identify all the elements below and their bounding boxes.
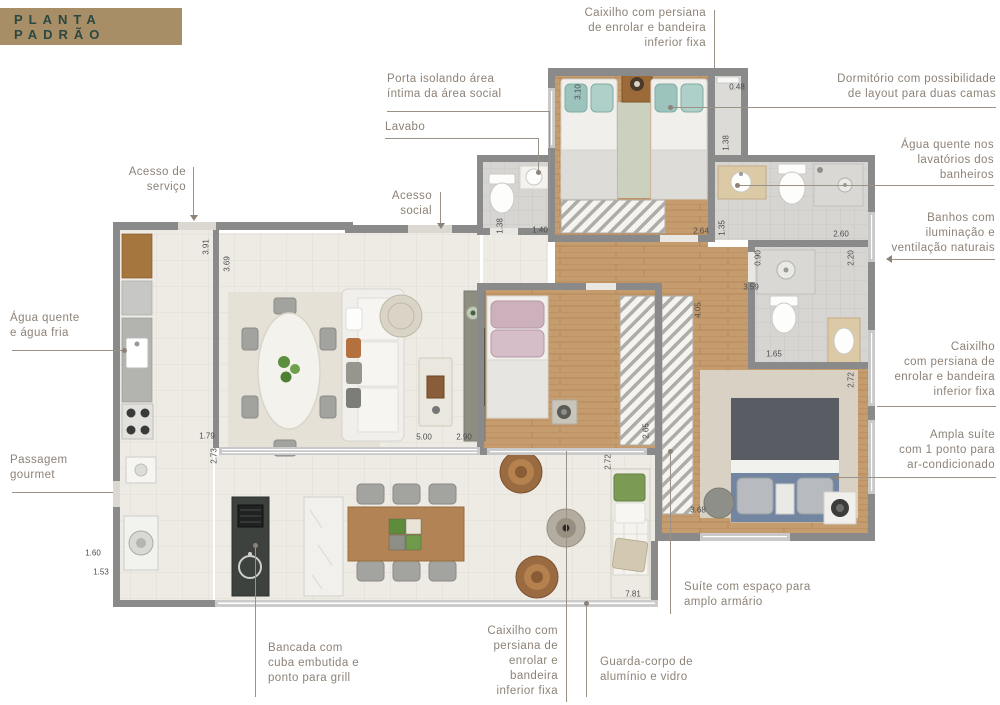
leader-arrow-acesso-social — [437, 223, 445, 229]
leader-suite-armario — [670, 452, 671, 614]
callout-passagem-gourmet: Passagem gourmet — [10, 453, 68, 483]
callout-bancada: Bancada com cuba embutida e ponto para g… — [268, 641, 359, 686]
callout-banhos: Banhos com iluminação e ventilação natur… — [892, 211, 996, 256]
leader-caixilho-right — [877, 406, 996, 407]
callout-ampla-suite: Ampla suíte com 1 ponto para ar-condicio… — [899, 428, 995, 473]
callout-acesso-social: Acesso social — [392, 189, 432, 219]
callout-porta-isolando: Porta isolando área íntima da área socia… — [387, 72, 502, 102]
leader-acesso-servico — [193, 167, 194, 217]
callout-suite-armario: Suíte com espaço para amplo armário — [684, 580, 811, 610]
leader-guarda-corpo — [586, 604, 587, 697]
leader-dot-dormitorio — [668, 105, 673, 110]
leader-porta-isolando-v — [549, 111, 550, 228]
leader-lavabo-h — [385, 138, 538, 139]
leader-arrow-acesso-servico — [190, 215, 198, 221]
callout-guarda-corpo: Guarda-corpo de alumínio e vidro — [600, 655, 693, 685]
leader-dot-agua-quente-fria — [122, 348, 127, 353]
leader-acesso-social — [440, 192, 441, 225]
leader-bancada — [255, 546, 256, 697]
leader-banhos — [892, 259, 995, 260]
callout-caixilho-right: Caixilho com persiana de enrolar e bande… — [894, 340, 995, 400]
callout-caixilho-top: Caixilho com persiana de enrolar e bande… — [584, 6, 706, 51]
callout-acesso-servico: Acesso de serviço — [129, 165, 186, 195]
leader-caixilho-bottom — [566, 451, 567, 702]
leader-porta-isolando-h — [387, 111, 549, 112]
leader-caixilho-top — [714, 10, 715, 68]
leader-lavabo-v — [538, 138, 539, 172]
leader-arrow-banhos — [886, 255, 892, 263]
floor-plan — [0, 0, 1000, 705]
leader-passagem-gourmet — [12, 492, 113, 493]
leader-agua-quente-fria — [12, 350, 124, 351]
kitchen-appliances — [122, 234, 153, 439]
callout-agua-quente-fria: Água quente e água fria — [10, 311, 80, 341]
leader-dot-bancada — [253, 543, 258, 548]
leader-dot-ampla-suite — [834, 475, 839, 480]
leader-dot-suite-armario — [668, 449, 673, 454]
leader-dot-lavabo — [536, 170, 541, 175]
leader-ampla-suite — [837, 477, 996, 478]
leader-dormitorio — [670, 107, 996, 108]
callout-agua-banheiros: Água quente nos lavatórios dos banheiros — [901, 138, 994, 183]
page-title: PLANTA PADRÃO — [0, 8, 182, 45]
callout-caixilho-bottom: Caixilho com persiana de enrolar e bande… — [487, 624, 558, 699]
callout-lavabo: Lavabo — [385, 120, 425, 135]
leader-dot-agua-banheiros — [735, 183, 740, 188]
leader-agua-banheiros — [737, 185, 994, 186]
leader-dot-guarda-corpo — [584, 601, 589, 606]
callout-dormitorio: Dormitório com possibilidade de layout p… — [837, 72, 996, 102]
floor-plan-page: 3.913.691.792.731.601.531.381.403.100.48… — [0, 0, 1000, 705]
